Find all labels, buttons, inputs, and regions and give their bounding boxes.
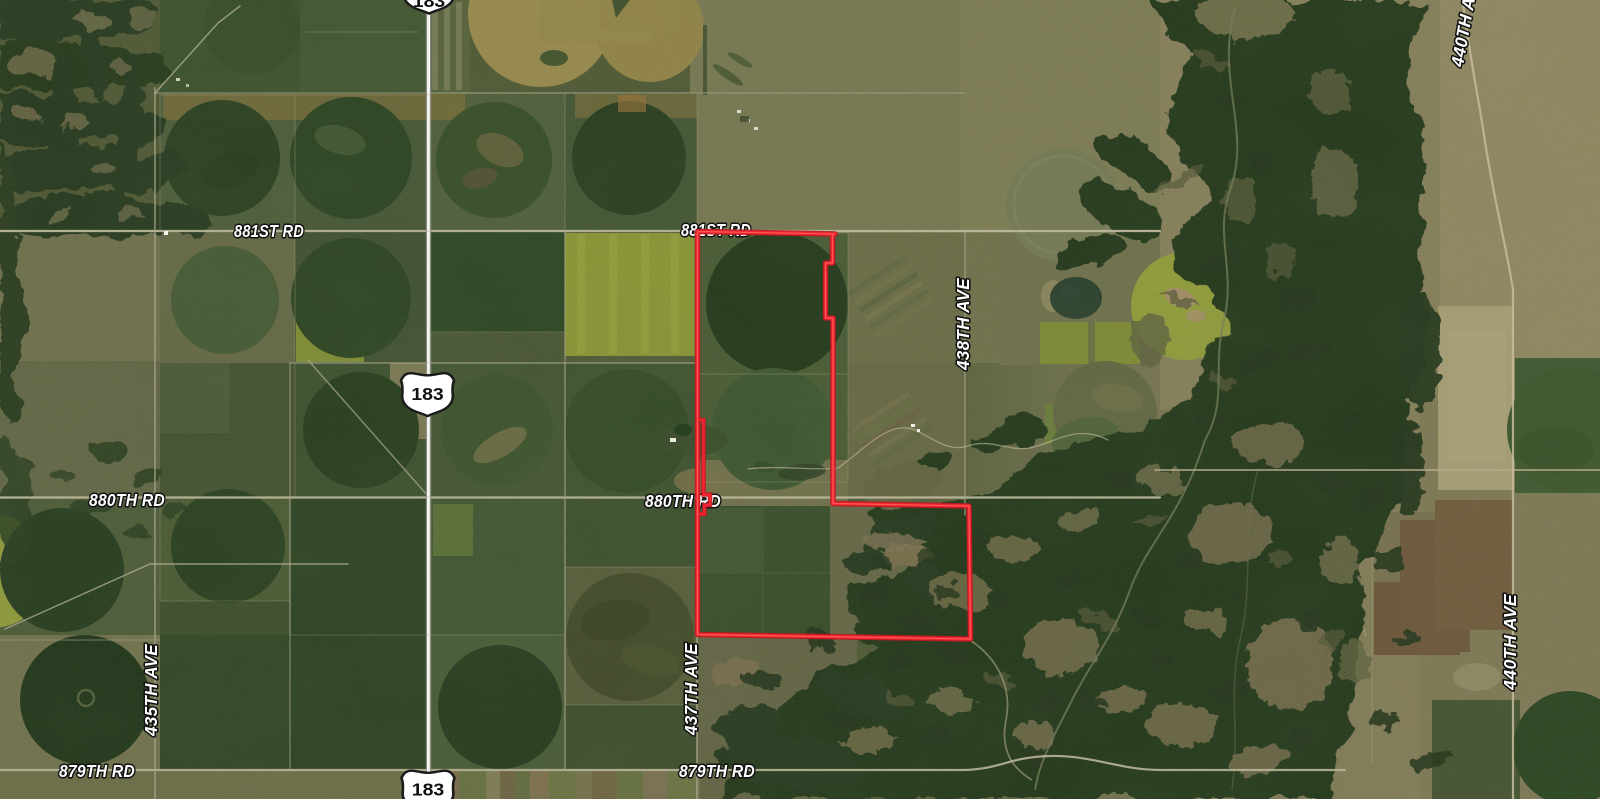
svg-text:879TH RD: 879TH RD [59, 761, 135, 781]
svg-text:438TH AVE: 438TH AVE [953, 277, 973, 371]
svg-text:440TH AVE: 440TH AVE [1500, 593, 1520, 691]
svg-text:183: 183 [412, 779, 445, 799]
svg-text:435TH AVE: 435TH AVE [141, 643, 161, 737]
svg-text:879TH RD: 879TH RD [679, 761, 755, 781]
svg-text:437TH AVE: 437TH AVE [681, 642, 701, 736]
svg-text:880TH RD: 880TH RD [89, 490, 165, 510]
svg-text:183: 183 [411, 384, 444, 404]
svg-text:183: 183 [413, 0, 446, 11]
svg-text:881ST RD: 881ST RD [234, 221, 304, 241]
